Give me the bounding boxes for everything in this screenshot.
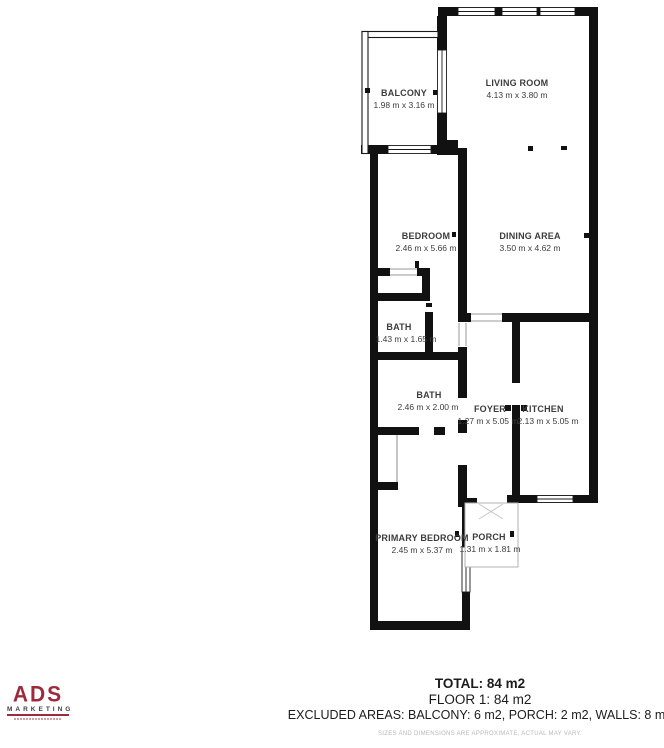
room-label-bath-2: BATH (416, 390, 441, 400)
room-dims-kitchen: 2.13 m x 5.05 m (518, 416, 579, 426)
room-label-foyer: FOYER (474, 404, 506, 414)
room-dims-balcony: 1.98 m x 3.16 m (374, 100, 435, 110)
room-dims-bath-2: 2.46 m x 2.00 m (398, 402, 459, 412)
floor-plan: BALCONY 1.98 m x 3.16 m LIVING ROOM 4.13… (0, 0, 664, 743)
summary-block: TOTAL: 84 m2 FLOOR 1: 84 m2 EXCLUDED ARE… (280, 676, 664, 738)
room-dims-porch: 1.31 m x 1.81 m (460, 544, 521, 554)
room-label-kitchen: KITCHEN (522, 404, 563, 414)
logo-mark: ADS (7, 683, 69, 705)
floor-area: FLOOR 1: 84 m2 (280, 692, 664, 707)
logo-subtitle: MARKETING (7, 706, 69, 713)
excluded-areas: EXCLUDED AREAS: BALCONY: 6 m2, PORCH: 2 … (280, 708, 664, 722)
logo-underline (7, 714, 69, 716)
company-logo: ADS MARKETING (7, 684, 69, 720)
room-dims-living-room: 4.13 m x 3.80 m (487, 90, 548, 100)
room-label-bedroom: BEDROOM (402, 231, 450, 241)
floor-plan-svg: BALCONY 1.98 m x 3.16 m LIVING ROOM 4.13… (0, 0, 664, 743)
total-area: TOTAL: 84 m2 (280, 676, 664, 691)
room-dims-bedroom: 2.46 m x 5.66 m (396, 243, 457, 253)
room-dims-primary-bedroom: 2.45 m x 5.37 m (392, 545, 453, 555)
room-dims-bath-1: 1.43 m x 1.65 m (376, 334, 437, 344)
room-dims-foyer: 1.27 m x 5.05 m (458, 416, 519, 426)
logo-microtext (14, 718, 62, 720)
room-label-porch: PORCH (472, 532, 506, 542)
room-label-living-room: LIVING ROOM (486, 78, 549, 88)
closet-front-line (396, 435, 398, 482)
room-label-primary-bedroom: PRIMARY BEDROOM (375, 533, 469, 543)
room-label-balcony: BALCONY (381, 88, 427, 98)
room-label-dining-area: DINING AREA (499, 231, 561, 241)
room-label-bath-1: BATH (386, 322, 411, 332)
room-dims-dining-area: 3.50 m x 4.62 m (500, 243, 561, 253)
disclaimer-text: SIZES AND DIMENSIONS ARE APPROXIMATE, AC… (280, 731, 664, 738)
